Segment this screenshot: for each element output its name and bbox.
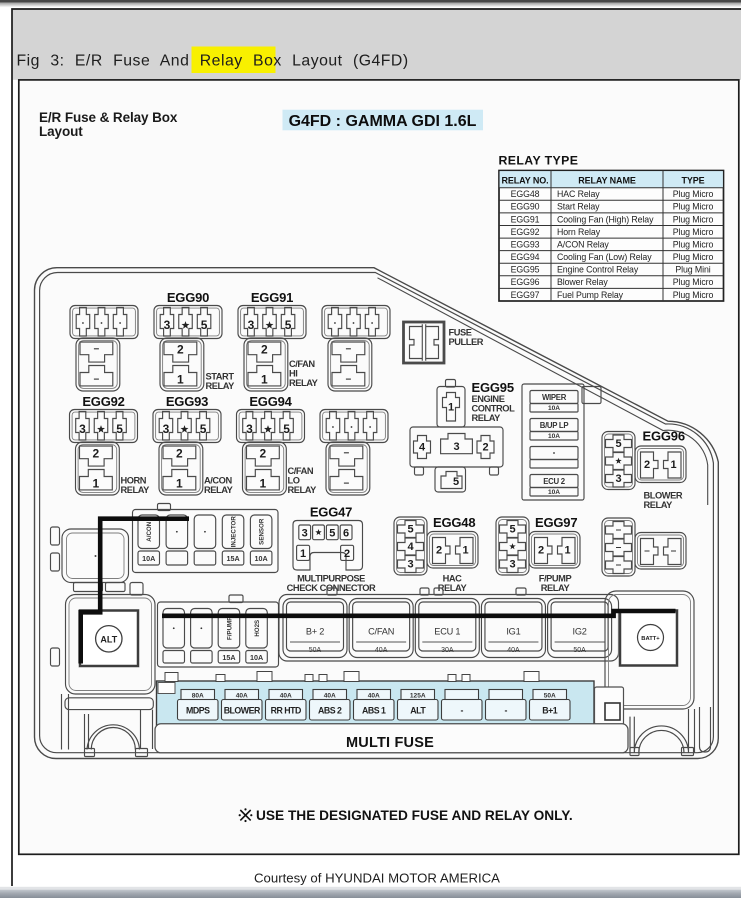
svg-text:RELAY: RELAY: [472, 413, 502, 423]
svg-text:5: 5: [407, 524, 413, 536]
svg-text:40A: 40A: [280, 692, 292, 699]
svg-text:5: 5: [116, 422, 123, 436]
svg-text:WIPER: WIPER: [542, 393, 567, 402]
svg-text:10A: 10A: [255, 554, 268, 563]
svg-text:Plug Micro: Plug Micro: [673, 227, 714, 237]
svg-text:3: 3: [246, 422, 253, 436]
svg-text:2: 2: [538, 545, 544, 557]
svg-text:1: 1: [176, 477, 183, 491]
svg-text:Engine Control Relay: Engine Control Relay: [557, 265, 639, 275]
svg-text:G4FD : GAMMA GDI 1.6L: G4FD : GAMMA GDI 1.6L: [289, 113, 477, 130]
svg-text:EGG91: EGG91: [511, 214, 540, 224]
svg-text:ABS 2: ABS 2: [318, 706, 342, 716]
svg-text:RELAY TYPE: RELAY TYPE: [499, 154, 579, 168]
svg-text:ALT: ALT: [410, 706, 426, 716]
svg-text:15A: 15A: [226, 554, 239, 563]
svg-text:10A: 10A: [548, 489, 560, 496]
svg-text:40A: 40A: [324, 692, 336, 699]
svg-text:TYPE: TYPE: [681, 175, 704, 185]
svg-text:125A: 125A: [410, 692, 426, 699]
svg-text:EGG96: EGG96: [643, 429, 685, 444]
svg-text:1: 1: [93, 477, 100, 491]
svg-text:Plug Micro: Plug Micro: [673, 202, 714, 212]
svg-text:MULTI FUSE: MULTI FUSE: [346, 735, 434, 751]
svg-text:2: 2: [482, 442, 488, 454]
svg-text:1: 1: [462, 545, 468, 557]
svg-text:6: 6: [343, 528, 349, 540]
svg-text:40A: 40A: [368, 692, 380, 699]
svg-text:2: 2: [436, 545, 442, 557]
svg-text:ECU 1: ECU 1: [434, 627, 460, 637]
svg-text:EGG90: EGG90: [167, 290, 209, 305]
svg-text:EGG93: EGG93: [166, 394, 208, 409]
svg-text:5: 5: [200, 422, 207, 436]
svg-text:1: 1: [448, 402, 454, 414]
svg-text:Fig 3: E/R Fuse And Relay Box: Fig 3: E/R Fuse And Relay Box Layout (G4…: [17, 53, 409, 70]
svg-text:50A: 50A: [309, 647, 322, 654]
svg-text:USE THE DESIGNATED FUSE AND RE: USE THE DESIGNATED FUSE AND RELAY ONLY.: [256, 808, 573, 823]
svg-text:5: 5: [615, 438, 621, 450]
svg-text:1: 1: [670, 459, 676, 471]
svg-text:5: 5: [283, 422, 290, 436]
svg-text:RELAY NAME: RELAY NAME: [578, 175, 636, 185]
svg-text:Blower Relay: Blower Relay: [557, 277, 608, 287]
svg-text:RELAY: RELAY: [206, 381, 236, 391]
svg-text:EGG96: EGG96: [511, 277, 540, 287]
svg-text:10A: 10A: [548, 405, 560, 412]
svg-text:Layout: Layout: [39, 124, 83, 139]
svg-text:Cooling Fan (Low) Relay: Cooling Fan (Low) Relay: [557, 252, 652, 262]
svg-text:Plug Micro: Plug Micro: [673, 189, 714, 199]
svg-text:EGG94: EGG94: [249, 394, 292, 409]
svg-text:MDPS: MDPS: [186, 706, 210, 716]
svg-text:B+1: B+1: [542, 706, 557, 716]
svg-text:Horn Relay: Horn Relay: [557, 227, 601, 237]
svg-text:BLOWER: BLOWER: [644, 491, 683, 501]
svg-text:2: 2: [644, 459, 650, 471]
svg-text:IG1: IG1: [506, 627, 520, 637]
svg-text:5: 5: [453, 476, 459, 488]
svg-text:40A: 40A: [507, 647, 520, 654]
svg-text:EGG90: EGG90: [511, 202, 540, 212]
svg-text:10A: 10A: [250, 653, 263, 662]
svg-text:Plug Micro: Plug Micro: [673, 290, 714, 300]
svg-text:RELAY: RELAY: [204, 485, 234, 495]
svg-text:RELAY: RELAY: [289, 378, 319, 388]
svg-text:EGG92: EGG92: [82, 394, 124, 409]
svg-text:F/PUMP: F/PUMP: [539, 574, 572, 584]
svg-text:5: 5: [201, 318, 208, 332]
svg-text:3: 3: [407, 559, 413, 571]
svg-text:40A: 40A: [236, 692, 248, 699]
svg-text:10A: 10A: [548, 433, 560, 440]
svg-text:2: 2: [261, 342, 268, 356]
svg-text:MULTIPURPOSE: MULTIPURPOSE: [297, 574, 365, 584]
svg-text:5: 5: [509, 524, 515, 536]
svg-text:IG2: IG2: [572, 627, 586, 637]
svg-text:RELAY: RELAY: [121, 485, 151, 495]
svg-text:ABS 1: ABS 1: [362, 706, 386, 716]
svg-text:2: 2: [260, 446, 267, 460]
svg-text:INJECTOR: INJECTOR: [230, 516, 237, 548]
svg-text:Plug Micro: Plug Micro: [673, 214, 714, 224]
svg-text:EGG95: EGG95: [472, 380, 514, 395]
svg-text:50A: 50A: [573, 647, 586, 654]
svg-text:A/CON: A/CON: [204, 476, 232, 486]
svg-text:3: 3: [509, 559, 515, 571]
svg-text:Plug Mini: Plug Mini: [675, 265, 710, 275]
svg-text:ECU 2: ECU 2: [543, 477, 565, 486]
svg-text:EGG92: EGG92: [511, 227, 540, 237]
svg-text:2: 2: [344, 548, 350, 560]
svg-text:EGG95: EGG95: [511, 265, 540, 275]
svg-text:ALT: ALT: [100, 634, 117, 644]
svg-text:3: 3: [164, 318, 171, 332]
svg-text:EGG97: EGG97: [535, 515, 577, 530]
svg-text:RELAY NO.: RELAY NO.: [501, 175, 548, 185]
svg-text:RELAY: RELAY: [541, 583, 571, 593]
svg-text:3: 3: [453, 441, 459, 453]
svg-text:RELAY: RELAY: [288, 485, 318, 495]
svg-text:LO: LO: [288, 476, 300, 486]
svg-text:5: 5: [285, 318, 292, 332]
svg-text:C/FAN: C/FAN: [289, 359, 315, 369]
svg-text:ENGINE: ENGINE: [472, 394, 505, 404]
svg-text:1: 1: [261, 373, 268, 387]
svg-text:C/FAN: C/FAN: [288, 466, 314, 476]
svg-text:3: 3: [163, 422, 170, 436]
svg-text:Fuel Pump Relay: Fuel Pump Relay: [557, 290, 624, 300]
svg-text:2: 2: [176, 446, 183, 460]
svg-text:4: 4: [407, 541, 414, 553]
svg-text:Plug Micro: Plug Micro: [673, 277, 714, 287]
svg-text:HAC Relay: HAC Relay: [557, 189, 600, 199]
svg-text:BATT+: BATT+: [641, 636, 660, 642]
svg-text:EGG93: EGG93: [511, 240, 540, 250]
svg-text:1: 1: [260, 477, 267, 491]
svg-text:RELAY: RELAY: [644, 500, 674, 510]
svg-text:50A: 50A: [544, 692, 556, 699]
svg-text:3: 3: [302, 528, 308, 540]
svg-text:1: 1: [300, 548, 306, 560]
svg-text:5: 5: [329, 528, 335, 540]
svg-text:15A: 15A: [222, 653, 235, 662]
svg-text:RR HTD: RR HTD: [271, 706, 301, 716]
svg-text:EGG91: EGG91: [251, 290, 293, 305]
svg-text:2: 2: [93, 446, 100, 460]
svg-text:E/R Fuse & Relay Box: E/R Fuse & Relay Box: [39, 110, 178, 125]
svg-text:SENSOR: SENSOR: [259, 518, 266, 545]
svg-text:2: 2: [177, 342, 184, 356]
svg-text:EGG94: EGG94: [511, 252, 540, 262]
svg-text:B/UP LP: B/UP LP: [540, 421, 569, 430]
svg-text:Plug Micro: Plug Micro: [673, 240, 714, 250]
svg-text:HI: HI: [289, 369, 297, 379]
svg-text:1: 1: [177, 373, 184, 387]
svg-text:80A: 80A: [192, 692, 204, 699]
svg-text:3: 3: [615, 473, 621, 485]
svg-text:Courtesy of HYUNDAI MOTOR AMER: Courtesy of HYUNDAI MOTOR AMERICA: [254, 871, 500, 886]
svg-text:30A: 30A: [441, 647, 454, 654]
svg-text:Cooling Fan (High) Relay: Cooling Fan (High) Relay: [557, 214, 654, 224]
svg-text:EGG48: EGG48: [511, 189, 540, 199]
svg-text:Start Relay: Start Relay: [557, 202, 600, 212]
svg-text:3: 3: [248, 318, 255, 332]
svg-text:HO2S: HO2S: [254, 620, 261, 637]
svg-text:EGG48: EGG48: [433, 515, 475, 530]
svg-text:F/PUMP: F/PUMP: [226, 617, 233, 640]
svg-text:EGG97: EGG97: [511, 290, 540, 300]
svg-text:40A: 40A: [375, 647, 388, 654]
svg-text:Plug Micro: Plug Micro: [673, 252, 714, 262]
svg-text:1: 1: [564, 545, 570, 557]
svg-text:BLOWER: BLOWER: [224, 706, 261, 716]
svg-text:A/CON: A/CON: [146, 521, 153, 541]
svg-text:HAC: HAC: [443, 574, 463, 584]
svg-text:HORN: HORN: [121, 476, 147, 486]
svg-text:4: 4: [419, 442, 426, 454]
svg-text:A/CON Relay: A/CON Relay: [557, 240, 609, 250]
svg-text:3: 3: [79, 422, 86, 436]
svg-text:START: START: [206, 372, 235, 382]
svg-text:CONTROL: CONTROL: [472, 404, 516, 414]
svg-text:B+ 2: B+ 2: [306, 627, 324, 637]
svg-text:PULLER: PULLER: [449, 337, 484, 347]
svg-text:C/FAN: C/FAN: [368, 627, 394, 637]
svg-text:10A: 10A: [142, 554, 155, 563]
svg-text:EGG47: EGG47: [310, 505, 352, 520]
svg-text:FUSE: FUSE: [449, 328, 472, 338]
